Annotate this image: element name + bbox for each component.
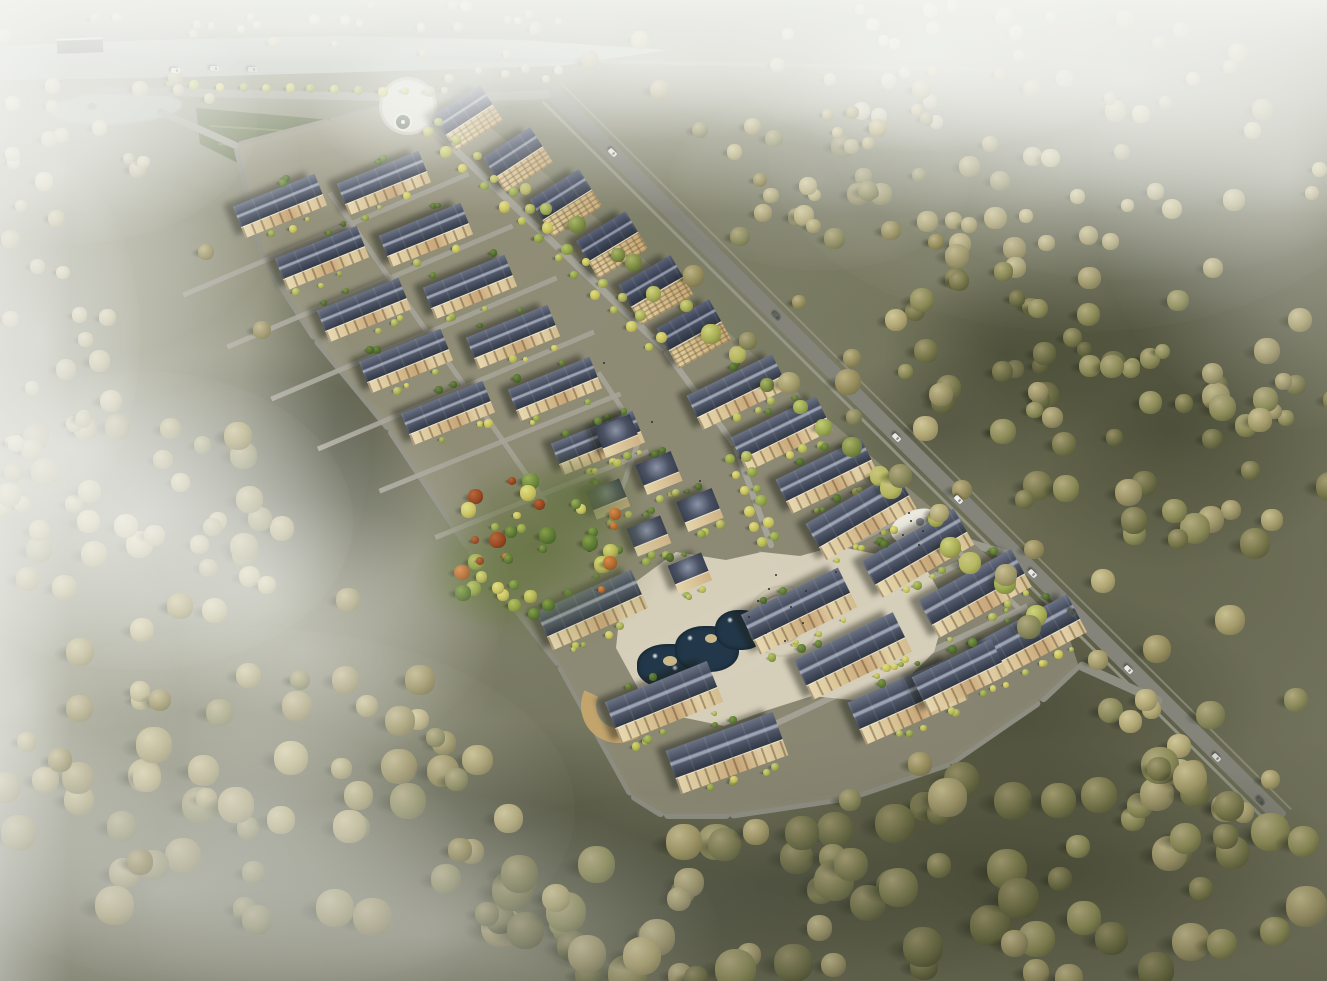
grading-overlay bbox=[0, 0, 1327, 981]
aerial-masterplan-rendering bbox=[0, 0, 1327, 981]
